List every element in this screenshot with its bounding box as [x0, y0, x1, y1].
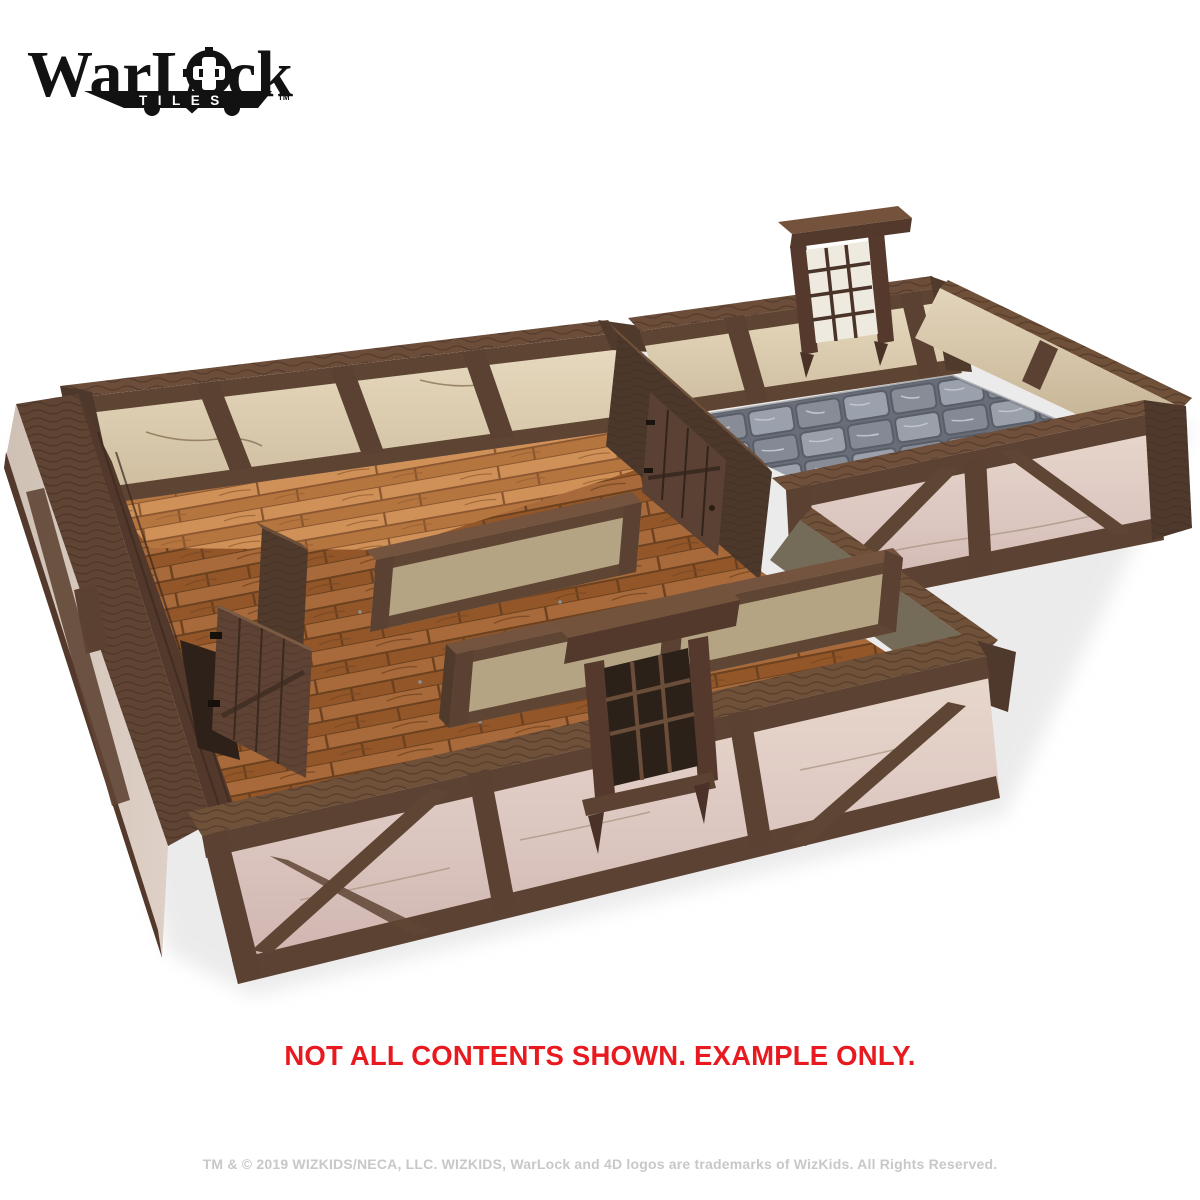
warlock-tiles-logo: WarL ck TILES TM: [26, 18, 386, 138]
product-page: WarL ck TILES TM: [0, 0, 1200, 1200]
logo-sub-text: TILES: [139, 93, 230, 108]
logo-tm: TM: [278, 93, 290, 102]
logo-graphic: WarL ck TILES TM: [26, 18, 386, 138]
product-photo: [0, 150, 1200, 1030]
legal-text: TM & © 2019 WIZKIDS/NECA, LLC. WIZKIDS, …: [0, 1156, 1200, 1172]
building-illustration: [0, 150, 1200, 1030]
disclaimer-text: NOT ALL CONTENTS SHOWN. EXAMPLE ONLY.: [0, 1040, 1200, 1072]
